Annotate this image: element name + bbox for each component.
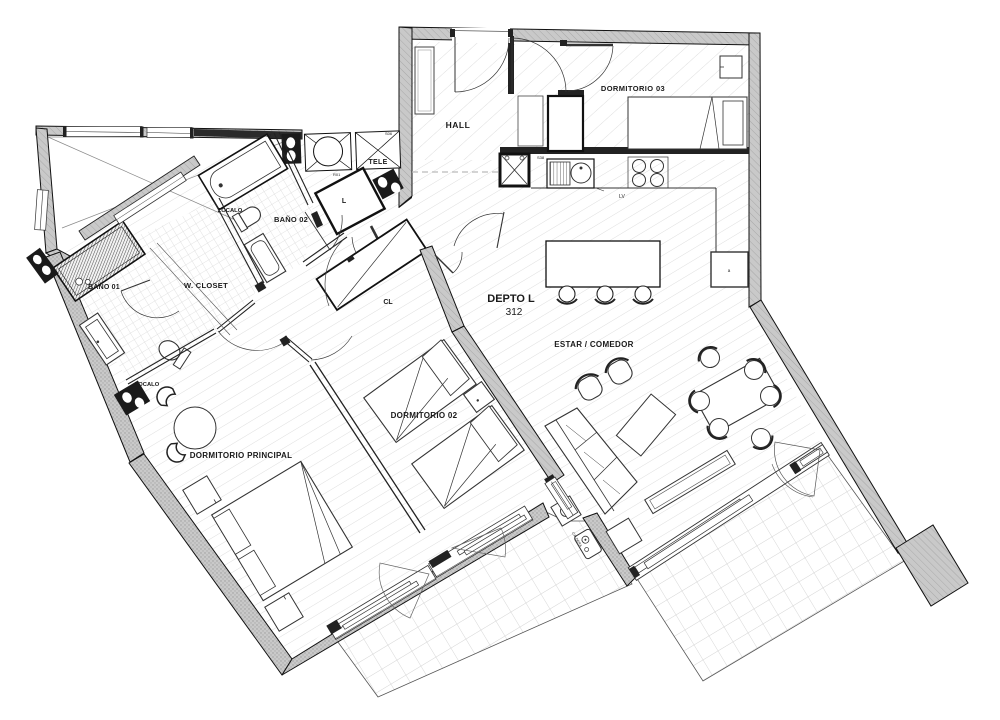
- svg-text:LV: LV: [619, 194, 625, 200]
- svg-text:BAÑO 02: BAÑO 02: [274, 215, 308, 224]
- svg-text:DEPTO L: DEPTO L: [487, 293, 535, 305]
- svg-text:R01: R01: [333, 172, 341, 177]
- svg-text:DORMITORIO PRINCIPAL: DORMITORIO PRINCIPAL: [190, 451, 293, 460]
- svg-text:W. CLOSET: W. CLOSET: [184, 281, 228, 290]
- svg-text:BAÑO 01: BAÑO 01: [88, 282, 120, 291]
- svg-text:312: 312: [506, 307, 523, 318]
- svg-text:TELE: TELE: [368, 159, 387, 166]
- svg-text:HALL: HALL: [446, 120, 471, 130]
- svg-text:ZOCALO: ZOCALO: [218, 208, 243, 214]
- svg-text:S06: S06: [385, 131, 393, 136]
- svg-text:A07: A07: [264, 133, 272, 138]
- svg-text:S38: S38: [537, 155, 545, 160]
- svg-text:DORMITORIO 02: DORMITORIO 02: [391, 411, 458, 420]
- svg-text:L: L: [342, 198, 347, 205]
- svg-text:DORMITORIO 03: DORMITORIO 03: [601, 84, 665, 93]
- svg-text:ESTAR / COMEDOR: ESTAR / COMEDOR: [554, 340, 633, 349]
- svg-text:CL: CL: [383, 299, 393, 306]
- svg-text:ZOCALO: ZOCALO: [135, 382, 160, 388]
